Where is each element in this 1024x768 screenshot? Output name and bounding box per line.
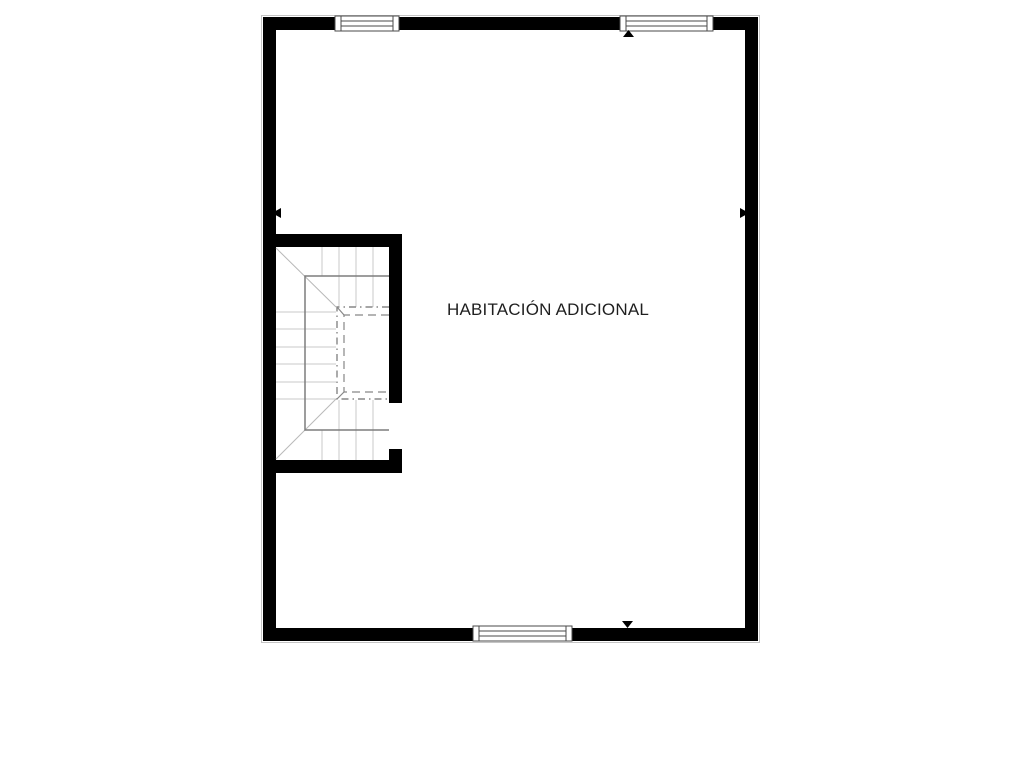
stair-diagonal-bottom (276, 399, 336, 459)
stair-wall-bottom (263, 460, 402, 473)
wall-right (745, 17, 758, 641)
stair-winder-diagonals (276, 248, 336, 459)
void-outer-line (337, 307, 389, 399)
wall-left (263, 17, 276, 641)
window-top-right (620, 16, 713, 31)
stair-wall-corner-cap (389, 449, 402, 473)
window-frame (335, 16, 399, 31)
stair-diagonal-top (276, 248, 336, 307)
stair-enclosure-walls (263, 234, 402, 473)
stair-wall-right (389, 234, 402, 403)
exterior-wall-outline (262, 16, 760, 643)
window-frame (473, 626, 572, 641)
void-corner-bevel-top (337, 307, 344, 315)
direction-marker-down-icon (622, 621, 633, 628)
exterior-walls (263, 17, 758, 641)
stairwell-void-outline (337, 307, 389, 399)
stair-rail (305, 276, 389, 430)
window-top-left (335, 16, 399, 31)
floor-plan-canvas: HABITACIÓN ADICIONAL (0, 0, 1024, 768)
floor-plan: HABITACIÓN ADICIONAL (0, 0, 1024, 768)
room-label: HABITACIÓN ADICIONAL (447, 300, 649, 319)
window-bottom (473, 626, 572, 641)
stair-treads (276, 247, 373, 460)
window-frame (620, 16, 713, 31)
void-corner-bevel-bottom (337, 392, 344, 399)
stair-wall-top (263, 234, 402, 247)
void-inner-line (344, 315, 389, 392)
